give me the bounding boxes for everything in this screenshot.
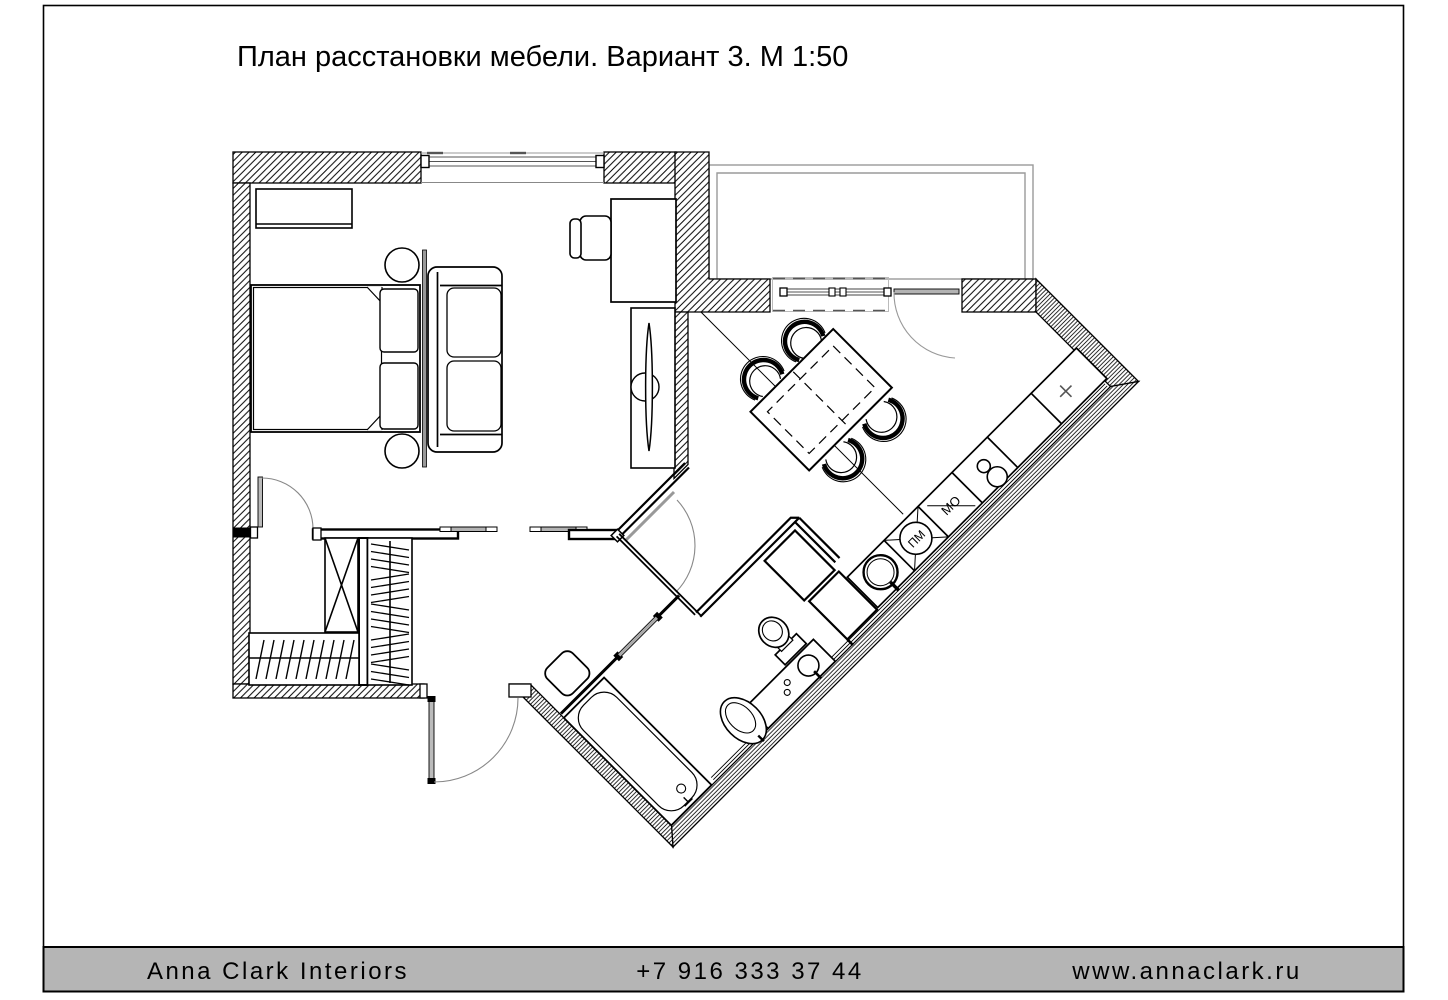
svg-text:www.annaclark.ru: www.annaclark.ru [1071, 958, 1301, 985]
svg-text:+7 916 333 37 44: +7 916 333 37 44 [636, 958, 864, 985]
svg-text:План расстановки мебели. Вари: План расстановки мебели. Вариант 3. М 1:… [237, 41, 848, 73]
svg-text:Anna Clark Interiors: Anna Clark Interiors [147, 958, 409, 985]
